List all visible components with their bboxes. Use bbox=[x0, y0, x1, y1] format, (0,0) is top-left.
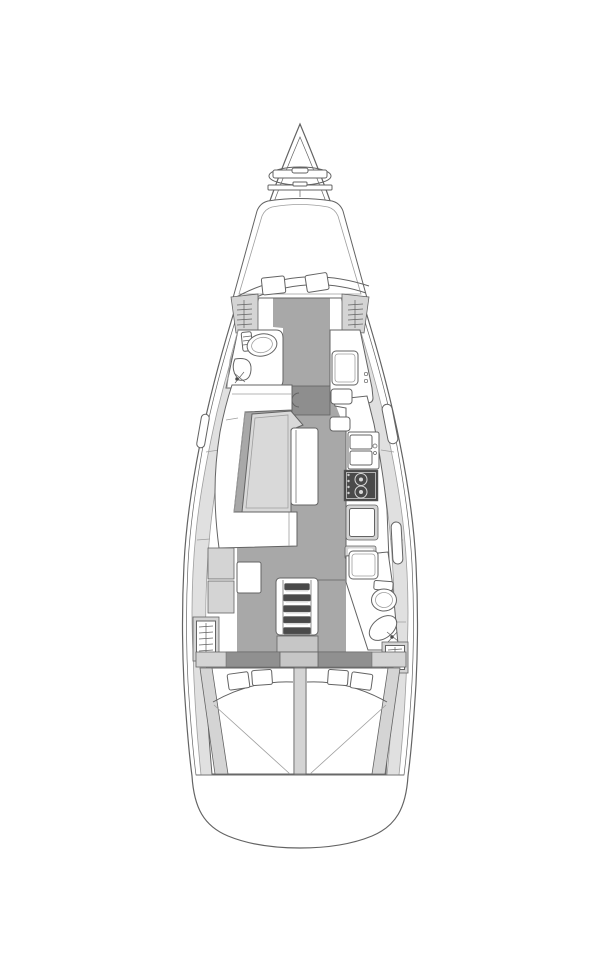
v-berth bbox=[233, 199, 367, 299]
forward-pillow-starboard bbox=[305, 272, 329, 292]
yacht-floor-plan bbox=[0, 0, 604, 960]
forward-hanging-locker-port bbox=[231, 294, 258, 333]
galley-double-sink bbox=[348, 432, 379, 469]
windlass-gypsy bbox=[292, 168, 308, 173]
starboard-hull-window-lower bbox=[391, 522, 403, 564]
wardrobe-door bbox=[332, 351, 358, 385]
aft-head-shower bbox=[349, 551, 378, 579]
aft-cabins bbox=[200, 668, 400, 774]
aft-bulkhead bbox=[196, 652, 406, 667]
yacht-floor-plan-canvas bbox=[0, 0, 604, 960]
cockpit-seat-port bbox=[226, 652, 280, 667]
aft-cabin-divider bbox=[294, 668, 306, 774]
aft-pillow-starboard-2 bbox=[350, 672, 373, 691]
aft-pillow-port-1 bbox=[227, 672, 250, 691]
cockpit-seat-starboard bbox=[318, 652, 372, 667]
sink-basin-1 bbox=[350, 435, 372, 449]
companionway-sill bbox=[280, 652, 318, 667]
galley-stove-two-burner bbox=[344, 470, 378, 501]
aft-pillow-port-2 bbox=[252, 669, 273, 685]
salon-table-leaf bbox=[291, 428, 318, 505]
sink-basin-2 bbox=[350, 451, 372, 465]
aft-head-toilet bbox=[372, 580, 397, 611]
mast-post bbox=[292, 386, 330, 415]
galley-fridge bbox=[346, 505, 378, 540]
galley-top-lid bbox=[331, 389, 352, 404]
nav-cabinet-lower bbox=[208, 581, 234, 613]
galley-mid-lid bbox=[330, 417, 350, 431]
forward-pillow-port bbox=[261, 276, 286, 295]
forward-hanging-locker-starboard bbox=[342, 294, 369, 333]
nav-cabinet-upper bbox=[208, 548, 234, 579]
nav-station-desk bbox=[237, 562, 261, 593]
aft-pillow-starboard-1 bbox=[327, 669, 348, 685]
